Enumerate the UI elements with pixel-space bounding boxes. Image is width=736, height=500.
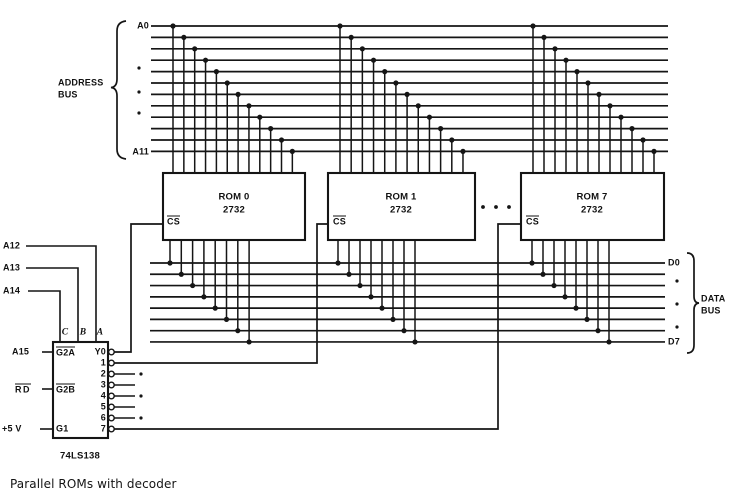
decoder-pin-a-label: A — [97, 328, 104, 338]
rom7-part: 2732 — [581, 205, 603, 215]
data-line-d0-label: D0 — [668, 259, 680, 268]
signal-a14-label: A14 — [3, 287, 20, 296]
decoder-output-4-label: 4 — [101, 392, 106, 401]
rom0-chip-select-route — [115, 224, 164, 352]
rom1-part: 2732 — [390, 205, 412, 215]
decoder-output-3-label: 3 — [101, 381, 106, 390]
figure-caption: Parallel ROMs with decoder — [10, 478, 177, 490]
rom1-data-drops — [335, 240, 417, 345]
decoder-part-label: 74LS138 — [60, 451, 100, 461]
decoder-pin-g1-label: G1 — [56, 425, 68, 434]
data-bus-label-line2: BUS — [701, 307, 721, 316]
decoder-output-7-label: 7 — [101, 425, 106, 434]
address-bus-label-line1: ADDRESS — [58, 79, 103, 88]
decoder-output-5-label: 5 — [101, 403, 106, 412]
decoder-enable-input-wires — [40, 352, 53, 429]
decoder-pin-g2b-label: G2B — [56, 384, 75, 395]
signal-a15-label: A15 — [12, 348, 29, 357]
signal-a12-label: A12 — [3, 242, 20, 251]
signal-plus5v-label: +5 V — [2, 425, 22, 434]
decoder-output-2-label: 2 — [101, 370, 106, 379]
decoder-pin-c-label: C — [62, 328, 69, 338]
circuit-wires — [0, 0, 736, 500]
address-bus-label-line2: BUS — [58, 91, 78, 100]
signal-rd-label: RD — [15, 384, 31, 395]
address-bus-lines — [151, 26, 668, 151]
rom0-cs-label: CS — [167, 216, 180, 227]
decoder-output-6-label: 6 — [101, 414, 106, 423]
rom2-data-drops — [529, 240, 611, 345]
rom0-name: ROM 0 — [218, 192, 249, 202]
address-line-a11-label: A11 — [132, 148, 149, 157]
address-line-a0-label: A0 — [137, 22, 149, 31]
rom7-cs-label: CS — [526, 216, 539, 227]
rom0-part: 2732 — [223, 205, 245, 215]
decoder-pin-b-label: B — [80, 328, 87, 338]
data-bus-label-line1: DATA — [701, 295, 725, 304]
decoder-output-1-label: 1 — [101, 359, 106, 368]
decoder-output-pins — [109, 349, 135, 432]
rom7-name: ROM 7 — [576, 192, 607, 202]
decoder-pin-g2a-label: G2A — [56, 347, 75, 358]
rom1-cs-label: CS — [333, 216, 346, 227]
decoder-output-y0-label: Y0 — [95, 348, 106, 357]
data-line-d7-label: D7 — [668, 338, 680, 347]
signal-a13-label: A13 — [3, 264, 20, 273]
schematic-page: A0 A11 ADDRESS BUS ROM 0 2732 CS ROM 1 2… — [0, 0, 736, 500]
rom0-data-drops — [167, 240, 251, 345]
rom1-name: ROM 1 — [385, 192, 416, 202]
